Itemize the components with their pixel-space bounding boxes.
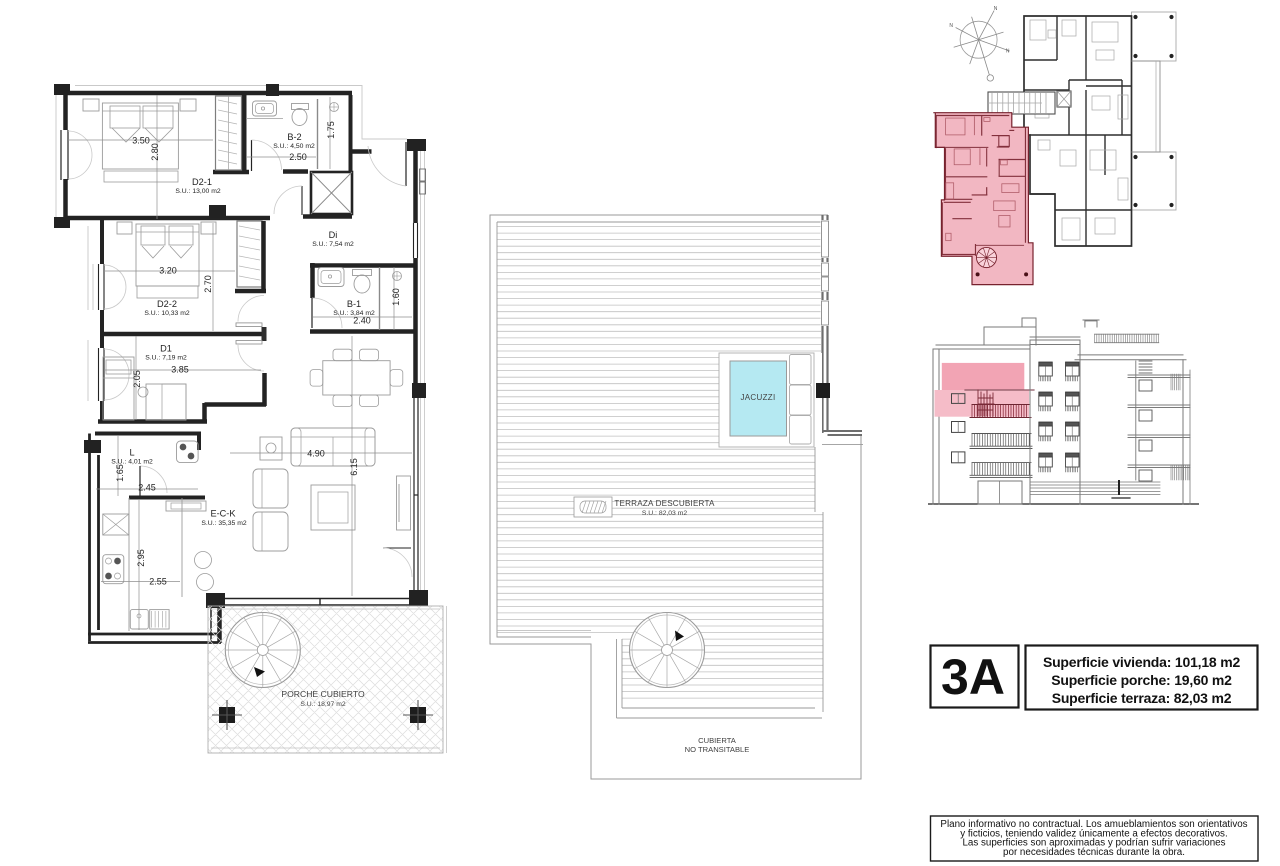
svg-text:E-C-K: E-C-K (210, 509, 236, 519)
svg-text:CUBIERTA: CUBIERTA (698, 736, 737, 745)
svg-text:4.90: 4.90 (307, 449, 325, 459)
svg-text:2.55: 2.55 (149, 577, 167, 587)
svg-text:B-2: B-2 (287, 132, 301, 142)
svg-text:3.20: 3.20 (159, 266, 177, 276)
svg-text:D2-2: D2-2 (157, 299, 177, 309)
svg-text:1.65: 1.65 (115, 464, 125, 482)
svg-text:S.U.: 18,97 m2: S.U.: 18,97 m2 (300, 701, 346, 708)
svg-text:2.80: 2.80 (150, 143, 160, 161)
svg-text:2.40: 2.40 (353, 316, 371, 326)
svg-text:Di: Di (329, 230, 338, 240)
svg-text:Superficie terraza: 82,03 m2: Superficie terraza: 82,03 m2 (1052, 690, 1232, 706)
svg-text:N: N (1006, 48, 1010, 54)
svg-text:L: L (129, 448, 134, 458)
svg-text:NO TRANSITABLE: NO TRANSITABLE (685, 745, 750, 754)
svg-text:S.U.: 35,35 m2: S.U.: 35,35 m2 (201, 520, 247, 527)
svg-text:S.U.: 7,54 m2: S.U.: 7,54 m2 (312, 241, 354, 248)
svg-text:D2-1: D2-1 (192, 177, 212, 187)
svg-text:N: N (949, 23, 953, 29)
svg-text:N: N (994, 6, 998, 12)
svg-text:2.95: 2.95 (136, 549, 146, 567)
svg-text:6.15: 6.15 (349, 458, 359, 476)
svg-text:por necesidades técnicas duran: por necesidades técnicas durante la obra… (1003, 847, 1185, 858)
svg-text:Superficie porche: 19,60 m2: Superficie porche: 19,60 m2 (1051, 672, 1232, 688)
svg-text:1.75: 1.75 (326, 121, 336, 139)
svg-text:D1: D1 (160, 344, 172, 354)
svg-text:S.U.: 82,03 m2: S.U.: 82,03 m2 (642, 510, 688, 517)
svg-text:3.85: 3.85 (171, 365, 189, 375)
svg-text:S.U.: 13,00 m2: S.U.: 13,00 m2 (175, 188, 221, 195)
svg-text:PORCHE CUBIERTO: PORCHE CUBIERTO (281, 689, 365, 699)
svg-text:3.50: 3.50 (132, 136, 150, 146)
svg-text:JACUZZI: JACUZZI (741, 393, 776, 402)
svg-text:1.60: 1.60 (391, 288, 401, 306)
svg-text:S.U.: 10,33 m2: S.U.: 10,33 m2 (144, 310, 190, 317)
svg-text:S.U.: 4,50 m2: S.U.: 4,50 m2 (273, 143, 315, 150)
svg-text:TERRAZA DESCUBIERTA: TERRAZA DESCUBIERTA (614, 499, 715, 508)
svg-text:Superficie vivienda: 101,18 m2: Superficie vivienda: 101,18 m2 (1043, 654, 1241, 670)
svg-text:S.U.: 7,19 m2: S.U.: 7,19 m2 (145, 355, 187, 362)
svg-text:2.50: 2.50 (289, 152, 307, 162)
svg-text:2.45: 2.45 (138, 483, 156, 493)
svg-text:3A: 3A (941, 649, 1005, 705)
svg-text:B-1: B-1 (347, 299, 361, 309)
svg-text:2.70: 2.70 (203, 275, 213, 293)
svg-text:2.05: 2.05 (132, 370, 142, 388)
